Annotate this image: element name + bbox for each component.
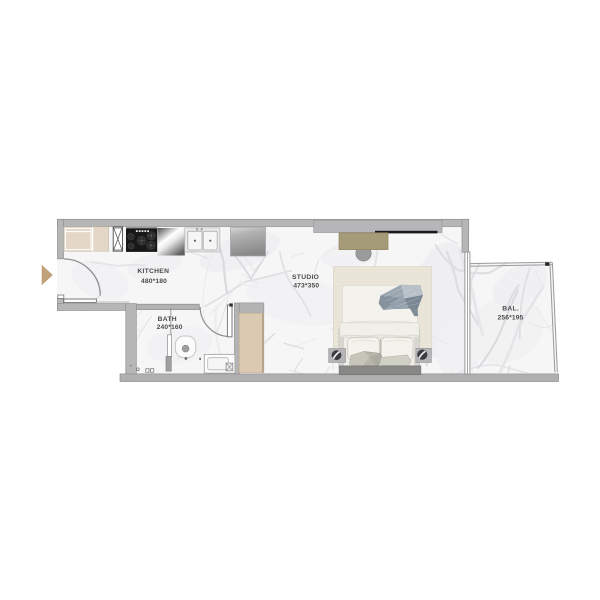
svg-text:480*180: 480*180 bbox=[141, 278, 167, 285]
svg-text:473*350: 473*350 bbox=[293, 283, 319, 290]
svg-text:STUDIO: STUDIO bbox=[292, 274, 319, 281]
svg-text:BATH: BATH bbox=[158, 316, 177, 323]
svg-text:256*195: 256*195 bbox=[498, 314, 524, 321]
svg-text:BAL.: BAL. bbox=[502, 305, 519, 312]
svg-text:KITCHEN: KITCHEN bbox=[137, 268, 169, 275]
svg-text:240*160: 240*160 bbox=[157, 324, 183, 331]
